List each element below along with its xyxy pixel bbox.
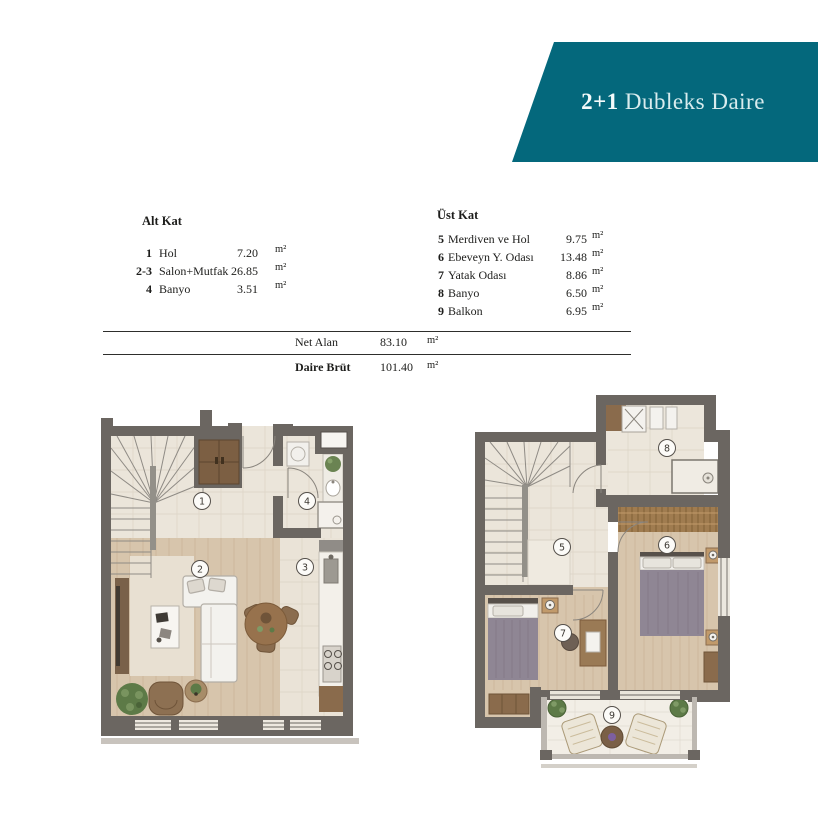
title-banner-inner: 2+1 Dubleks Daire	[500, 42, 818, 162]
room-label: 3	[302, 563, 308, 574]
table-row: 4 Banyo 3.51 m²	[126, 280, 304, 298]
room-area: 6.95	[544, 302, 587, 320]
room-no: 5	[430, 230, 444, 248]
room-unit: m²	[587, 245, 623, 263]
kitchen-counter	[319, 540, 343, 712]
armchair	[149, 682, 183, 715]
room-unit: m²	[587, 227, 623, 245]
room-no: 7	[430, 266, 444, 284]
room-label: 8	[664, 444, 670, 455]
ust-kat-heading: Üst Kat	[437, 208, 623, 223]
coffee-table	[151, 606, 179, 648]
room-name: Merdiven ve Hol	[444, 230, 544, 248]
room-no: 2-3	[126, 262, 152, 280]
page-title: 2+1 Dubleks Daire	[581, 89, 765, 115]
net-alan-label: Net Alan	[295, 335, 377, 349]
daire-brut-row: Daire Brüt 101.40 m²	[295, 360, 438, 376]
alt-kat-heading: Alt Kat	[142, 214, 304, 229]
entry-wardrobe	[199, 440, 239, 484]
room-unit: m²	[258, 259, 304, 277]
daire-brut-value: 101.40	[380, 360, 424, 374]
room-name: Ebeveyn Y. Odası	[444, 248, 544, 266]
net-alan-value: 83.10	[380, 335, 424, 349]
room-label: 9	[609, 711, 615, 722]
room-no: 8	[430, 284, 444, 302]
room-no: 6	[430, 248, 444, 266]
room-unit: m²	[258, 241, 304, 259]
room-name: Banyo	[444, 284, 544, 302]
summary-divider-top	[103, 331, 631, 332]
plan-shadow	[101, 738, 359, 744]
alt-kat-table: Alt Kat 1 Hol 7.20 m² 2-3 Salon+Mutfak 2…	[126, 214, 304, 298]
room-unit: m²	[587, 263, 623, 281]
room-area: 13.48	[544, 248, 587, 266]
room-name: Hol	[152, 244, 228, 262]
net-alan-unit: m²	[427, 335, 438, 346]
room-name: Salon+Mutfak	[152, 262, 228, 280]
room-unit: m²	[258, 277, 304, 295]
room-label: 7	[560, 629, 566, 640]
net-alan-row: Net Alan 83.10 m²	[295, 335, 438, 351]
room-no: 1	[126, 244, 152, 262]
room-unit: m²	[587, 299, 623, 317]
page-title-bold: 2+1	[581, 89, 619, 114]
plant	[116, 683, 148, 715]
room-label: 2	[197, 565, 203, 576]
room-area: 3.51	[228, 280, 258, 298]
room-area: 9.75	[544, 230, 587, 248]
room-area: 8.86	[544, 266, 587, 284]
page-title-rest: Dubleks Daire	[619, 89, 765, 114]
daire-brut-unit: m²	[427, 360, 438, 371]
side-table	[185, 680, 207, 702]
room-label: 1	[199, 497, 205, 508]
room-no: 4	[126, 280, 152, 298]
tv-unit	[115, 578, 129, 674]
title-banner: 2+1 Dubleks Daire	[500, 42, 818, 162]
room-label: 4	[304, 497, 310, 508]
daire-brut-label: Daire Brüt	[295, 360, 377, 374]
ust-kat-floorplan: 5 6 7 8 9	[470, 390, 732, 772]
table-row: 9 Balkon 6.95 m²	[430, 302, 623, 320]
room-name: Yatak Odası	[444, 266, 544, 284]
room-area: 26.85	[228, 262, 258, 280]
ust-kat-table: Üst Kat 5 Merdiven ve Hol 9.75 m² 6 Ebev…	[430, 208, 623, 320]
room-no: 9	[430, 302, 444, 320]
floorplan-sheet: 2+1 Dubleks Daire Alt Kat 1 Hol 7.20 m² …	[0, 0, 818, 821]
room-name: Balkon	[444, 302, 544, 320]
room-unit: m²	[587, 281, 623, 299]
room-label: 5	[559, 543, 565, 554]
summary-divider-bottom	[103, 354, 631, 355]
alt-kat-floorplan: 1 2 3 4	[97, 408, 359, 746]
room-label: 6	[664, 541, 670, 552]
room-name: Banyo	[152, 280, 228, 298]
room-area: 6.50	[544, 284, 587, 302]
room-area: 7.20	[228, 244, 258, 262]
